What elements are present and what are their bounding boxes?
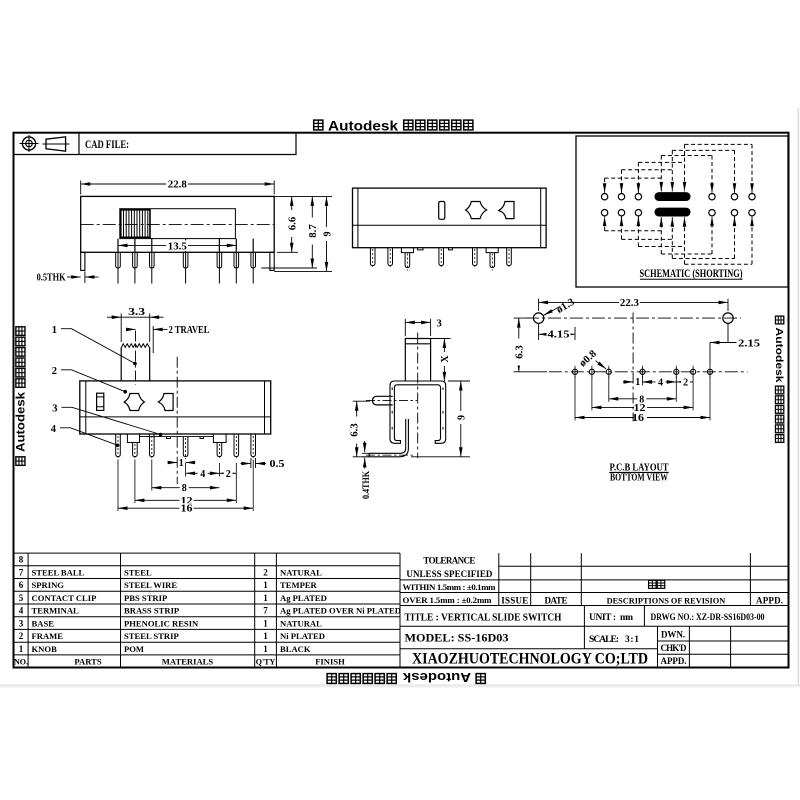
- svg-text:KNOB: KNOB: [32, 644, 58, 654]
- svg-text:8.7: 8.7: [308, 224, 319, 238]
- svg-text:NO.: NO.: [14, 658, 28, 667]
- svg-text:APPD.: APPD.: [756, 595, 783, 605]
- svg-text:SCHEMATIC (SHORTING): SCHEMATIC (SHORTING): [640, 268, 743, 280]
- svg-text:MATERIALS: MATERIALS: [162, 657, 214, 667]
- svg-text:8: 8: [19, 555, 24, 565]
- svg-text:Autodesk: Autodesk: [328, 119, 399, 134]
- svg-text:1: 1: [179, 458, 184, 469]
- svg-text:STEEL STRIP: STEEL STRIP: [124, 631, 179, 641]
- svg-text:4: 4: [19, 606, 24, 616]
- svg-text:MODEL: SS-16D03: MODEL: SS-16D03: [405, 631, 509, 645]
- svg-text:STEEL BALL: STEEL BALL: [32, 567, 85, 577]
- svg-text:2: 2: [226, 469, 231, 480]
- svg-text:NATURAL: NATURAL: [280, 567, 322, 577]
- svg-text:DRWG NO.: XZ-DR-SS16D03-00: DRWG NO.: XZ-DR-SS16D03-00: [651, 612, 765, 622]
- svg-text:BASE: BASE: [32, 618, 55, 628]
- svg-text:FRAME: FRAME: [32, 631, 64, 641]
- svg-text:2 TRAVEL: 2 TRAVEL: [169, 325, 210, 336]
- svg-text:PHENOLIC RESIN: PHENOLIC RESIN: [124, 618, 199, 628]
- svg-text:4: 4: [200, 469, 205, 480]
- svg-text:1: 1: [263, 593, 268, 603]
- svg-text:6.3: 6.3: [350, 423, 361, 437]
- svg-text:CAD FILE:: CAD FILE:: [85, 137, 129, 151]
- svg-text:TOLERANCE: TOLERANCE: [423, 556, 475, 566]
- svg-text:APPD.: APPD.: [661, 656, 687, 666]
- svg-text:STEEL: STEEL: [124, 567, 152, 577]
- svg-text:3: 3: [52, 404, 57, 415]
- svg-text:UNIT :: UNIT :: [589, 613, 616, 623]
- svg-text:2: 2: [263, 567, 268, 577]
- svg-text:UNLESS SPECIFIED: UNLESS SPECIFIED: [406, 569, 493, 579]
- svg-text:DWN.: DWN.: [661, 630, 685, 640]
- svg-text:ISSUE: ISSUE: [501, 595, 528, 605]
- svg-text:22.3: 22.3: [620, 298, 639, 309]
- svg-text:FINISH: FINISH: [315, 657, 345, 667]
- svg-text:8: 8: [182, 483, 187, 494]
- svg-text:5: 5: [19, 593, 24, 603]
- svg-text:CONTACT CLIP: CONTACT CLIP: [32, 593, 97, 603]
- svg-text:9: 9: [322, 232, 333, 237]
- svg-text:X: X: [440, 355, 451, 363]
- svg-text:2.15: 2.15: [738, 338, 760, 349]
- svg-text:16: 16: [632, 413, 644, 424]
- svg-text:9: 9: [456, 415, 467, 420]
- svg-text:1: 1: [263, 580, 268, 590]
- svg-text:Q'TY: Q'TY: [256, 658, 276, 667]
- svg-text:4: 4: [658, 377, 663, 388]
- svg-text:Ni PLATED: Ni PLATED: [280, 631, 325, 641]
- svg-text:OVER 1.5mm : ±0.2mm: OVER 1.5mm : ±0.2mm: [403, 595, 493, 605]
- svg-text:4: 4: [51, 424, 57, 435]
- svg-text:7: 7: [19, 567, 24, 577]
- svg-text:NATURAL: NATURAL: [280, 618, 322, 628]
- svg-text:1: 1: [263, 631, 268, 641]
- svg-text:DATE: DATE: [545, 595, 568, 605]
- svg-text:TITLE : VERTICAL SLIDE SWITCH: TITLE : VERTICAL SLIDE SWITCH: [405, 611, 562, 623]
- svg-text:POM: POM: [124, 644, 144, 654]
- svg-text:DESCRIPTIONS OF REVISION: DESCRIPTIONS OF REVISION: [607, 596, 726, 605]
- svg-text:3:1: 3:1: [625, 635, 639, 645]
- svg-text:STEEL WIRE: STEEL WIRE: [124, 580, 177, 590]
- svg-text:2: 2: [19, 631, 24, 641]
- svg-text:16: 16: [181, 504, 193, 515]
- svg-text:BLACK: BLACK: [280, 644, 311, 654]
- svg-text:4.15: 4.15: [548, 330, 570, 341]
- svg-text:TEMPER: TEMPER: [280, 580, 318, 590]
- svg-text:1: 1: [263, 618, 268, 628]
- svg-text:0.4THK: 0.4THK: [362, 470, 372, 499]
- svg-text:1: 1: [263, 644, 268, 654]
- svg-text:Ag PLATED OVER Ni PLATED: Ag PLATED OVER Ni PLATED: [280, 606, 401, 616]
- svg-text:22.8: 22.8: [168, 180, 187, 191]
- svg-text:3: 3: [437, 319, 442, 330]
- svg-text:TERMINAL: TERMINAL: [32, 606, 80, 616]
- svg-text:XIAOZHUOTECHNOLOGY CO;LTD: XIAOZHUOTECHNOLOGY CO;LTD: [412, 651, 648, 668]
- svg-text:Ag PLATED: Ag PLATED: [280, 593, 327, 603]
- svg-text:1: 1: [19, 644, 24, 654]
- svg-text:3.3: 3.3: [128, 307, 145, 318]
- svg-text:SCALE:: SCALE:: [589, 635, 619, 645]
- svg-text:WITHIN 1.5mm : ±0.1mm: WITHIN 1.5mm : ±0.1mm: [403, 582, 497, 592]
- svg-text:13.5: 13.5: [168, 241, 187, 252]
- svg-text:6: 6: [19, 580, 24, 590]
- svg-text:CHK'D: CHK'D: [661, 643, 688, 653]
- svg-text:SPRING: SPRING: [32, 580, 65, 590]
- svg-text:0.5: 0.5: [270, 459, 285, 470]
- svg-text:6.3: 6.3: [515, 345, 526, 359]
- svg-text:1: 1: [635, 377, 640, 388]
- svg-text:Autodesk: Autodesk: [16, 391, 28, 452]
- svg-text:2: 2: [52, 366, 57, 377]
- svg-text:3: 3: [19, 618, 24, 628]
- svg-text:mm: mm: [620, 613, 633, 623]
- svg-text:PBS STRIP: PBS STRIP: [124, 593, 167, 603]
- svg-text:0.5THK: 0.5THK: [37, 272, 66, 283]
- svg-text:Autodesk: Autodesk: [773, 328, 785, 383]
- svg-text:2: 2: [683, 377, 688, 388]
- svg-text:BRASS STRIP: BRASS STRIP: [124, 606, 179, 616]
- svg-text:6.6: 6.6: [288, 217, 299, 231]
- svg-text:1: 1: [52, 325, 57, 336]
- svg-text:PARTS: PARTS: [74, 657, 101, 667]
- svg-text:7: 7: [263, 606, 268, 616]
- svg-text:Autodesk: Autodesk: [402, 670, 471, 685]
- svg-text:BOTTOM VIEW: BOTTOM VIEW: [610, 473, 668, 484]
